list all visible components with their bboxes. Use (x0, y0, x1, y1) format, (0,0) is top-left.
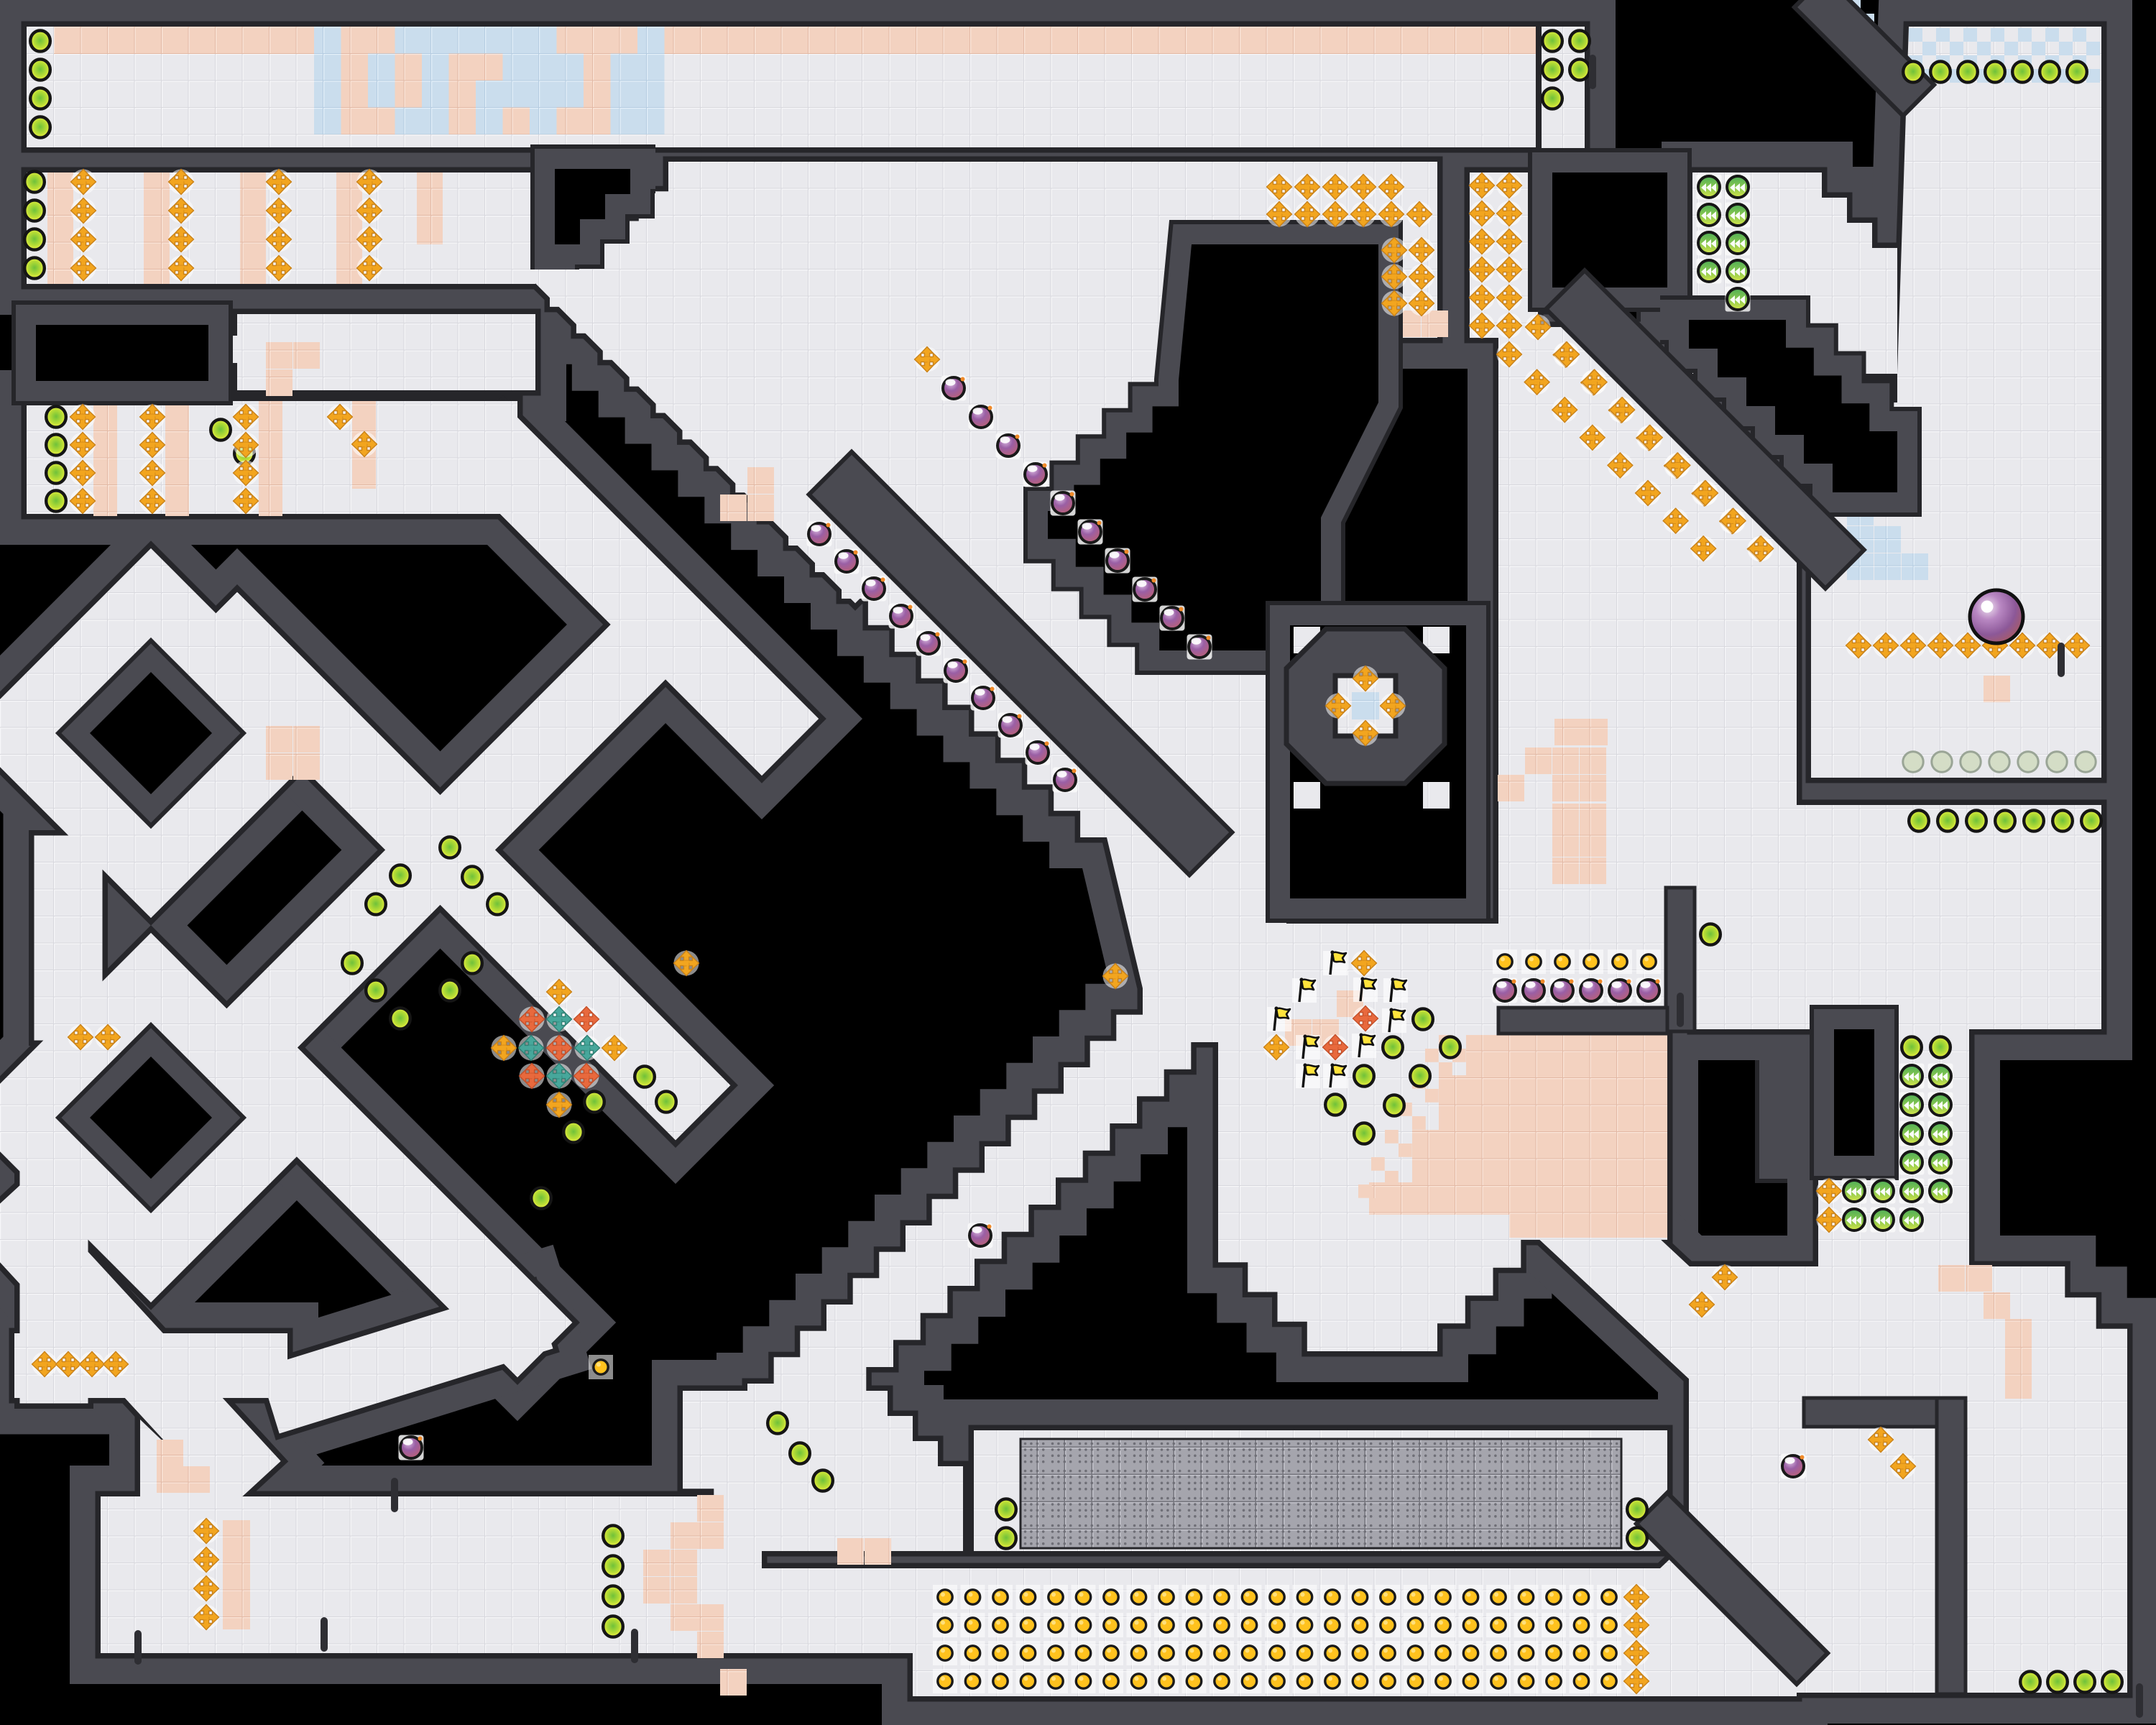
arrow-cross-gold[interactable] (234, 433, 259, 458)
arrow-cross-gold[interactable] (71, 227, 96, 252)
gold-dot[interactable] (1431, 1613, 1455, 1637)
gold-dot[interactable] (1542, 1641, 1566, 1665)
gold-dot[interactable] (1542, 1585, 1566, 1609)
flag-pennant[interactable] (1323, 1063, 1347, 1088)
coin-orb[interactable] (2047, 1671, 2068, 1692)
arrow-cross-orange[interactable] (1353, 1006, 1378, 1031)
arrow-cross-gold[interactable] (357, 170, 382, 195)
bomb-mine[interactable] (1105, 548, 1130, 574)
arrow-cross-gold[interactable] (80, 1352, 105, 1377)
arrow-cross-gold[interactable] (267, 256, 292, 281)
gold-dot[interactable] (1210, 1613, 1234, 1637)
coin-orb[interactable] (563, 1121, 584, 1142)
gold-dot[interactable] (1404, 1585, 1428, 1609)
arrow-cross-gold[interactable] (1470, 285, 1495, 310)
coin-orb[interactable] (2053, 810, 2073, 831)
gold-dot[interactable] (1016, 1641, 1041, 1665)
bomb-mine[interactable] (1608, 978, 1633, 1003)
coin-orb[interactable] (1938, 810, 1958, 831)
arrow-cross-gold[interactable] (1379, 202, 1404, 227)
coin-orb[interactable] (1700, 924, 1720, 944)
arrow-cross-teal[interactable] (547, 1064, 572, 1089)
coin-orb[interactable] (30, 116, 50, 137)
arrow-cross-gold[interactable] (1497, 342, 1522, 367)
gold-dot[interactable] (1348, 1669, 1373, 1693)
flag-pennant[interactable] (1267, 1006, 1291, 1031)
coin-orb[interactable] (1903, 61, 1923, 82)
coin-orb[interactable] (2020, 1671, 2040, 1692)
arrow-cross-gold[interactable] (1526, 315, 1551, 340)
gold-dot[interactable] (1293, 1585, 1317, 1609)
arrow-cross-gold[interactable] (492, 1036, 517, 1061)
gold-dot[interactable] (1182, 1613, 1207, 1637)
gold-dot[interactable] (1521, 949, 1546, 974)
coin-orb[interactable] (1966, 810, 1986, 831)
gold-dot[interactable] (1320, 1585, 1345, 1609)
gold-dot[interactable] (1154, 1641, 1179, 1665)
coin-orb[interactable] (996, 1499, 1016, 1519)
flag-pennant[interactable] (1383, 977, 1408, 1003)
coin-orb[interactable] (390, 865, 410, 885)
gold-dot[interactable] (933, 1641, 957, 1665)
coin-orb[interactable] (531, 1187, 551, 1208)
arrow-cross-gold[interactable] (1497, 313, 1522, 339)
bomb-mine[interactable] (944, 658, 969, 684)
arrow-cross-gold[interactable] (357, 256, 382, 281)
collected-dot[interactable] (2018, 752, 2038, 772)
bomb-mine[interactable] (1550, 978, 1575, 1003)
arrow-cross-gold[interactable] (1352, 951, 1377, 976)
bomb-mine[interactable] (941, 376, 967, 401)
speed-orb[interactable] (1899, 1207, 1925, 1233)
coin-orb[interactable] (487, 893, 507, 914)
speed-orb[interactable] (1899, 1179, 1925, 1204)
flag-pennant[interactable] (1292, 977, 1317, 1003)
arrow-cross-gold[interactable] (267, 170, 292, 195)
coin-orb[interactable] (440, 837, 460, 857)
coin-orb[interactable] (1995, 810, 2015, 831)
arrow-cross-gold[interactable] (1693, 481, 1718, 506)
coin-orb[interactable] (211, 419, 231, 440)
arrow-cross-gold[interactable] (267, 198, 292, 224)
gold-dot[interactable] (1486, 1641, 1511, 1665)
arrow-cross-gold[interactable] (1690, 1292, 1715, 1317)
coin-orb[interactable] (2075, 1671, 2095, 1692)
speed-orb[interactable] (1726, 259, 1751, 284)
arrow-cross-gold[interactable] (194, 1547, 219, 1573)
speed-orb[interactable] (1899, 1121, 1925, 1146)
arrow-cross-gold[interactable] (1846, 633, 1871, 658)
coin-orb[interactable] (2102, 1671, 2122, 1692)
arrow-cross-gold[interactable] (1264, 1035, 1289, 1060)
gold-dot[interactable] (1376, 1669, 1400, 1693)
arrow-cross-gold[interactable] (1267, 175, 1292, 200)
speed-orb[interactable] (1842, 1207, 1867, 1233)
bomb-mine[interactable] (969, 405, 994, 430)
gold-dot[interactable] (1127, 1613, 1151, 1637)
coin-orb[interactable] (2067, 61, 2087, 82)
flag-pennant[interactable] (1296, 1034, 1320, 1059)
arrow-cross-gold[interactable] (1295, 175, 1320, 200)
arrow-cross-gold[interactable] (70, 489, 96, 514)
coin-orb[interactable] (1909, 810, 1929, 831)
gold-dot[interactable] (1550, 949, 1575, 974)
coin-orb[interactable] (813, 1470, 833, 1491)
gold-dot[interactable] (1210, 1641, 1234, 1665)
arrow-cross-gold[interactable] (328, 405, 353, 430)
arrow-cross-gold[interactable] (1409, 238, 1434, 263)
gold-dot[interactable] (1154, 1613, 1179, 1637)
gold-dot[interactable] (1016, 1585, 1041, 1609)
arrow-cross-gold[interactable] (234, 461, 259, 486)
gold-dot[interactable] (1182, 1641, 1207, 1665)
speed-orb[interactable] (1928, 1150, 1953, 1175)
coin-orb[interactable] (768, 1412, 788, 1433)
arrow-cross-gold[interactable] (1497, 285, 1522, 310)
arrow-cross-gold[interactable] (169, 227, 194, 252)
gold-dot[interactable] (933, 1613, 957, 1637)
coin-orb[interactable] (790, 1443, 810, 1463)
arrow-cross-gold[interactable] (1624, 1641, 1649, 1666)
gold-dot[interactable] (1182, 1585, 1207, 1609)
arrow-cross-gold[interactable] (194, 1519, 219, 1544)
gold-dot[interactable] (1459, 1585, 1483, 1609)
coin-orb[interactable] (462, 952, 482, 973)
arrow-cross-gold[interactable] (1554, 342, 1580, 367)
gold-dot[interactable] (1265, 1641, 1289, 1665)
gold-dot[interactable] (1348, 1641, 1373, 1665)
gold-dot[interactable] (1597, 1669, 1621, 1693)
arrow-cross-gold[interactable] (1665, 453, 1690, 478)
arrow-cross-gold[interactable] (1663, 508, 1688, 533)
gold-dot[interactable] (961, 1669, 985, 1693)
arrow-cross-gold[interactable] (1353, 666, 1378, 691)
gold-dot[interactable] (1293, 1613, 1317, 1637)
coin-orb[interactable] (46, 462, 66, 483)
gold-dot[interactable] (1597, 1641, 1621, 1665)
bomb-mine[interactable] (1493, 978, 1518, 1003)
collected-dot[interactable] (2076, 752, 2096, 772)
bomb-mine[interactable] (1023, 462, 1049, 487)
arrow-cross-gold[interactable] (70, 461, 96, 486)
arrow-cross-gold[interactable] (674, 951, 699, 976)
coin-orb[interactable] (440, 980, 460, 1000)
arrow-cross-gold[interactable] (1610, 397, 1635, 423)
gold-dot[interactable] (1431, 1641, 1455, 1665)
gold-dot[interactable] (988, 1613, 1013, 1637)
coin-orb[interactable] (1354, 1065, 1374, 1086)
coin-orb[interactable] (24, 171, 45, 192)
gold-dot[interactable] (1238, 1613, 1262, 1637)
arrow-cross-gold[interactable] (1720, 508, 1746, 533)
coin-orb[interactable] (1627, 1527, 1647, 1548)
arrow-cross-gold[interactable] (169, 256, 194, 281)
gold-dot[interactable] (1044, 1613, 1068, 1637)
arrow-cross-gold[interactable] (1409, 264, 1434, 290)
arrow-cross-gold[interactable] (1409, 291, 1434, 316)
gold-dot[interactable] (1459, 1613, 1483, 1637)
coin-orb[interactable] (46, 490, 66, 511)
coin-orb[interactable] (1542, 59, 1562, 80)
coin-orb[interactable] (1930, 61, 1950, 82)
gold-dot[interactable] (933, 1585, 957, 1609)
gold-dot[interactable] (1431, 1669, 1455, 1693)
arrow-cross-gold[interactable] (267, 227, 292, 252)
coin-orb[interactable] (656, 1091, 676, 1112)
bomb-mine[interactable] (1579, 978, 1604, 1003)
coin-orb[interactable] (1985, 61, 2005, 82)
bomb-mine[interactable] (968, 1223, 993, 1248)
player-big-orb[interactable] (1970, 590, 2023, 643)
arrow-cross-gold[interactable] (915, 347, 940, 372)
bomb-mine[interactable] (1636, 978, 1662, 1003)
arrow-cross-orange[interactable] (1323, 1035, 1348, 1060)
gold-dot[interactable] (1238, 1669, 1262, 1693)
speed-orb[interactable] (1697, 259, 1722, 284)
gold-dot[interactable] (1459, 1641, 1483, 1665)
bomb-mine[interactable] (889, 604, 914, 629)
arrow-cross-gold[interactable] (1382, 291, 1407, 316)
arrow-cross-gold[interactable] (56, 1352, 81, 1377)
arrow-cross-gold[interactable] (70, 433, 96, 458)
gold-dot[interactable] (1376, 1641, 1400, 1665)
speed-orb[interactable] (1871, 1207, 1896, 1233)
gold-dot[interactable] (1348, 1613, 1373, 1637)
speed-orb[interactable] (1726, 287, 1751, 312)
arrow-cross-gold[interactable] (140, 405, 165, 430)
arrow-cross-gold[interactable] (547, 1092, 572, 1118)
gold-dot[interactable] (1099, 1613, 1123, 1637)
gold-dot[interactable] (1072, 1613, 1096, 1637)
arrow-cross-gold[interactable] (140, 489, 165, 514)
speed-orb[interactable] (1928, 1121, 1953, 1146)
arrow-cross-gold[interactable] (1379, 175, 1404, 200)
gold-dot[interactable] (1016, 1613, 1041, 1637)
gold-dot[interactable] (1044, 1641, 1068, 1665)
gold-dot[interactable] (1348, 1585, 1373, 1609)
arrow-cross-orange[interactable] (520, 1007, 545, 1032)
arrow-cross-gold[interactable] (1497, 229, 1522, 254)
gold-dot[interactable] (1376, 1613, 1400, 1637)
gold-dot[interactable] (1127, 1669, 1151, 1693)
arrow-cross-gold[interactable] (169, 198, 194, 224)
bomb-mine[interactable] (834, 549, 860, 574)
arrow-cross-gold[interactable] (32, 1352, 57, 1377)
speed-orb[interactable] (1899, 1064, 1925, 1089)
arrow-cross-gold[interactable] (194, 1576, 219, 1601)
gold-dot[interactable] (1099, 1669, 1123, 1693)
arrow-cross-gold[interactable] (1351, 202, 1376, 227)
flag-pennant[interactable] (1352, 1033, 1376, 1058)
gold-dot[interactable] (1486, 1669, 1511, 1693)
gold-dot[interactable] (1570, 1669, 1594, 1693)
coin-orb[interactable] (2040, 61, 2060, 82)
gold-dot[interactable] (1514, 1641, 1539, 1665)
gold-dot[interactable] (1238, 1585, 1262, 1609)
speed-orb[interactable] (1697, 175, 1722, 200)
gold-dot[interactable] (1570, 1613, 1594, 1637)
coin-orb[interactable] (1570, 30, 1590, 51)
coin-orb[interactable] (30, 30, 50, 51)
coin-orb[interactable] (1383, 1036, 1403, 1057)
gold-dot[interactable] (1099, 1641, 1123, 1665)
arrow-cross-gold[interactable] (1326, 694, 1351, 719)
bomb-mine[interactable] (1160, 606, 1185, 631)
coin-orb[interactable] (584, 1091, 604, 1112)
speed-orb[interactable] (1928, 1064, 1953, 1089)
coin-orb[interactable] (390, 1008, 410, 1029)
bomb-mine[interactable] (1078, 520, 1103, 545)
arrow-cross-orange[interactable] (547, 1036, 572, 1061)
arrow-cross-gold[interactable] (103, 1352, 129, 1377)
arrow-cross-gold[interactable] (1470, 201, 1495, 226)
arrow-cross-gold[interactable] (1749, 536, 1774, 561)
gold-dot[interactable] (1404, 1669, 1428, 1693)
coin-orb[interactable] (1384, 1095, 1404, 1115)
coin-orb[interactable] (1440, 1036, 1460, 1057)
speed-orb[interactable] (1871, 1179, 1896, 1204)
coin-orb[interactable] (1627, 1499, 1647, 1519)
coin-orb[interactable] (24, 257, 45, 278)
arrow-cross-gold[interactable] (1295, 202, 1320, 227)
arrow-cross-gold[interactable] (1869, 1427, 1894, 1453)
flag-pennant[interactable] (1296, 1063, 1320, 1088)
gold-dot[interactable] (1320, 1641, 1345, 1665)
arrow-cross-gold[interactable] (1624, 1585, 1649, 1610)
arrow-cross-gold[interactable] (1636, 481, 1661, 506)
coin-orb[interactable] (1958, 61, 1978, 82)
speed-orb[interactable] (1899, 1092, 1925, 1118)
gold-dot[interactable] (961, 1641, 985, 1665)
gold-dot[interactable] (1486, 1585, 1511, 1609)
gold-dot[interactable] (988, 1585, 1013, 1609)
bomb-mine[interactable] (1026, 740, 1051, 765)
gold-dot[interactable] (1210, 1585, 1234, 1609)
coin-orb[interactable] (24, 200, 45, 221)
arrow-cross-gold[interactable] (1624, 1669, 1649, 1694)
coin-orb[interactable] (603, 1555, 623, 1576)
arrow-cross-gold[interactable] (70, 405, 96, 430)
coin-orb[interactable] (1902, 1036, 1922, 1057)
gold-dot[interactable] (1579, 949, 1603, 974)
gold-dot[interactable] (1044, 1585, 1068, 1609)
arrow-cross-gold[interactable] (1524, 369, 1549, 395)
level-map-canvas[interactable] (0, 0, 2156, 1725)
bomb-mine[interactable] (998, 713, 1023, 738)
arrow-cross-gold[interactable] (1470, 257, 1495, 282)
speed-orb[interactable] (1697, 231, 1722, 256)
arrow-cross-gold[interactable] (1901, 633, 1926, 658)
gold-dot[interactable] (961, 1585, 985, 1609)
gold-dot[interactable] (1072, 1641, 1096, 1665)
gold-dot[interactable] (1265, 1613, 1289, 1637)
bomb-mine[interactable] (1053, 768, 1078, 793)
gold-dot[interactable] (1486, 1613, 1511, 1637)
coin-orb[interactable] (2024, 810, 2044, 831)
coin-orb[interactable] (603, 1525, 623, 1546)
gold-dot[interactable] (1044, 1669, 1068, 1693)
coin-orb[interactable] (1354, 1123, 1374, 1144)
coin-orb[interactable] (1410, 1065, 1430, 1086)
arrow-cross-gold[interactable] (1928, 633, 1953, 658)
gold-dot[interactable] (1072, 1669, 1096, 1693)
gold-dot[interactable] (1293, 1641, 1317, 1665)
gold-dot[interactable] (1127, 1585, 1151, 1609)
arrow-cross-gold[interactable] (1497, 201, 1522, 226)
arrow-cross-gold[interactable] (1497, 257, 1522, 282)
gold-dot[interactable] (1431, 1585, 1455, 1609)
gold-dot[interactable] (1636, 949, 1661, 974)
bomb-mine[interactable] (399, 1435, 424, 1460)
bomb-mine[interactable] (1051, 491, 1076, 516)
coin-orb[interactable] (462, 866, 482, 887)
arrow-cross-gold[interactable] (1382, 264, 1407, 290)
arrow-cross-gold[interactable] (1552, 397, 1577, 423)
arrow-cross-gold[interactable] (71, 256, 96, 281)
gold-dot[interactable] (1238, 1641, 1262, 1665)
arrow-cross-gold[interactable] (2065, 633, 2090, 658)
gold-dot[interactable] (988, 1641, 1013, 1665)
bomb-mine[interactable] (862, 576, 887, 602)
arrow-cross-gold[interactable] (1817, 1207, 1842, 1233)
gold-dot[interactable] (1293, 1669, 1317, 1693)
arrow-cross-gold[interactable] (1353, 721, 1378, 746)
arrow-cross-gold[interactable] (1891, 1454, 1916, 1479)
coin-orb[interactable] (603, 1586, 623, 1606)
arrow-cross-gold[interactable] (1874, 633, 1899, 658)
gold-dot[interactable] (1016, 1669, 1041, 1693)
arrow-cross-gold[interactable] (1582, 369, 1607, 395)
coin-orb[interactable] (603, 1616, 623, 1637)
arrow-cross-gold[interactable] (71, 198, 96, 224)
coin-orb[interactable] (1542, 30, 1562, 51)
arrow-cross-gold[interactable] (547, 980, 572, 1005)
gold-dot[interactable] (1514, 1669, 1539, 1693)
arrow-cross-gold[interactable] (1323, 202, 1348, 227)
arrow-cross-gold[interactable] (1351, 175, 1376, 200)
collected-dot[interactable] (1903, 752, 1923, 772)
gold-dot[interactable] (1154, 1585, 1179, 1609)
arrow-cross-gold[interactable] (352, 432, 377, 457)
gold-dot[interactable] (1127, 1641, 1151, 1665)
coin-orb[interactable] (24, 229, 45, 249)
bomb-mine[interactable] (916, 631, 941, 656)
arrow-cross-orange[interactable] (574, 1007, 599, 1032)
arrow-cross-gold[interactable] (1624, 1613, 1649, 1638)
gold-dot[interactable] (1265, 1585, 1289, 1609)
arrow-cross-gold[interactable] (1323, 175, 1348, 200)
arrow-cross-teal[interactable] (575, 1036, 600, 1061)
arrow-cross-gold[interactable] (1382, 238, 1407, 263)
coin-orb[interactable] (366, 893, 386, 914)
collected-dot[interactable] (2047, 752, 2067, 772)
arrow-cross-gold[interactable] (194, 1605, 219, 1630)
coin-orb[interactable] (366, 980, 386, 1000)
speed-orb[interactable] (1928, 1179, 1953, 1204)
arrow-cross-gold[interactable] (1713, 1265, 1738, 1290)
arrow-cross-gold[interactable] (357, 227, 382, 252)
coin-orb[interactable] (342, 952, 362, 973)
gold-dot[interactable] (1570, 1585, 1594, 1609)
gold-dot[interactable] (1608, 949, 1632, 974)
gold-dot[interactable] (1320, 1669, 1345, 1693)
bomb-mine[interactable] (1187, 635, 1212, 660)
coin-orb[interactable] (1413, 1008, 1433, 1029)
gold-dot[interactable] (1542, 1669, 1566, 1693)
gold-dot[interactable] (961, 1613, 985, 1637)
arrow-cross-gold[interactable] (1637, 425, 1662, 450)
gold-dot[interactable] (1182, 1669, 1207, 1693)
